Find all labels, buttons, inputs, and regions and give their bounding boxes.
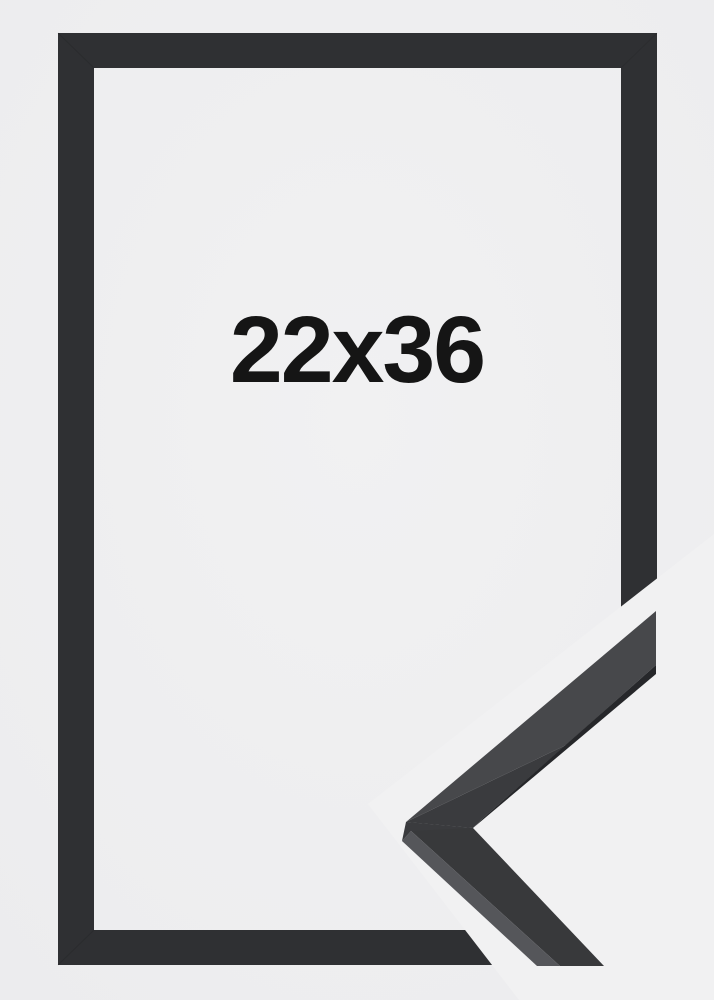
product-image-canvas: 22x36	[0, 0, 714, 1000]
size-label: 22x36	[230, 297, 484, 403]
frame-product-photo: 22x36	[0, 0, 714, 1000]
